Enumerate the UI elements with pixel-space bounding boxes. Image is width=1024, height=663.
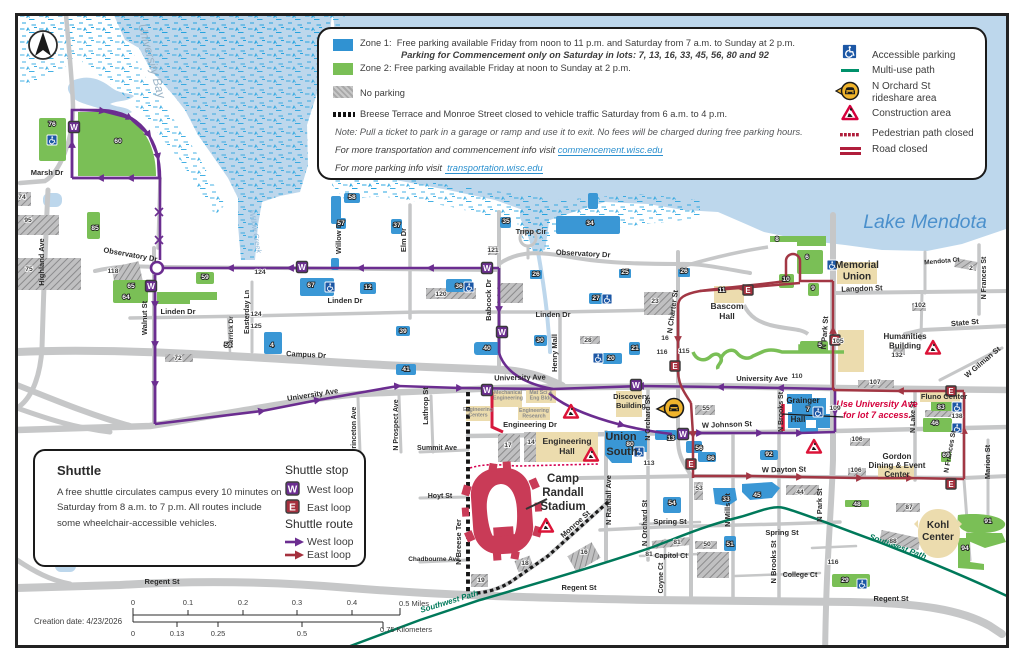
svg-text:0: 0	[131, 598, 135, 607]
svg-text:0.5: 0.5	[297, 629, 307, 638]
svg-text:0.4: 0.4	[347, 598, 357, 607]
svg-text:0.3: 0.3	[292, 598, 302, 607]
svg-text:0.13: 0.13	[170, 629, 185, 638]
svg-text:0: 0	[131, 629, 135, 638]
svg-text:0.1: 0.1	[183, 598, 193, 607]
svg-text:0.2: 0.2	[238, 598, 248, 607]
svg-text:0.5 Miles: 0.5 Miles	[399, 599, 429, 608]
svg-text:0.25: 0.25	[211, 629, 226, 638]
svg-text:Creation date: 4/23/2026: Creation date: 4/23/2026	[34, 617, 123, 626]
svg-text:0.75 Kilometers: 0.75 Kilometers	[380, 625, 432, 634]
